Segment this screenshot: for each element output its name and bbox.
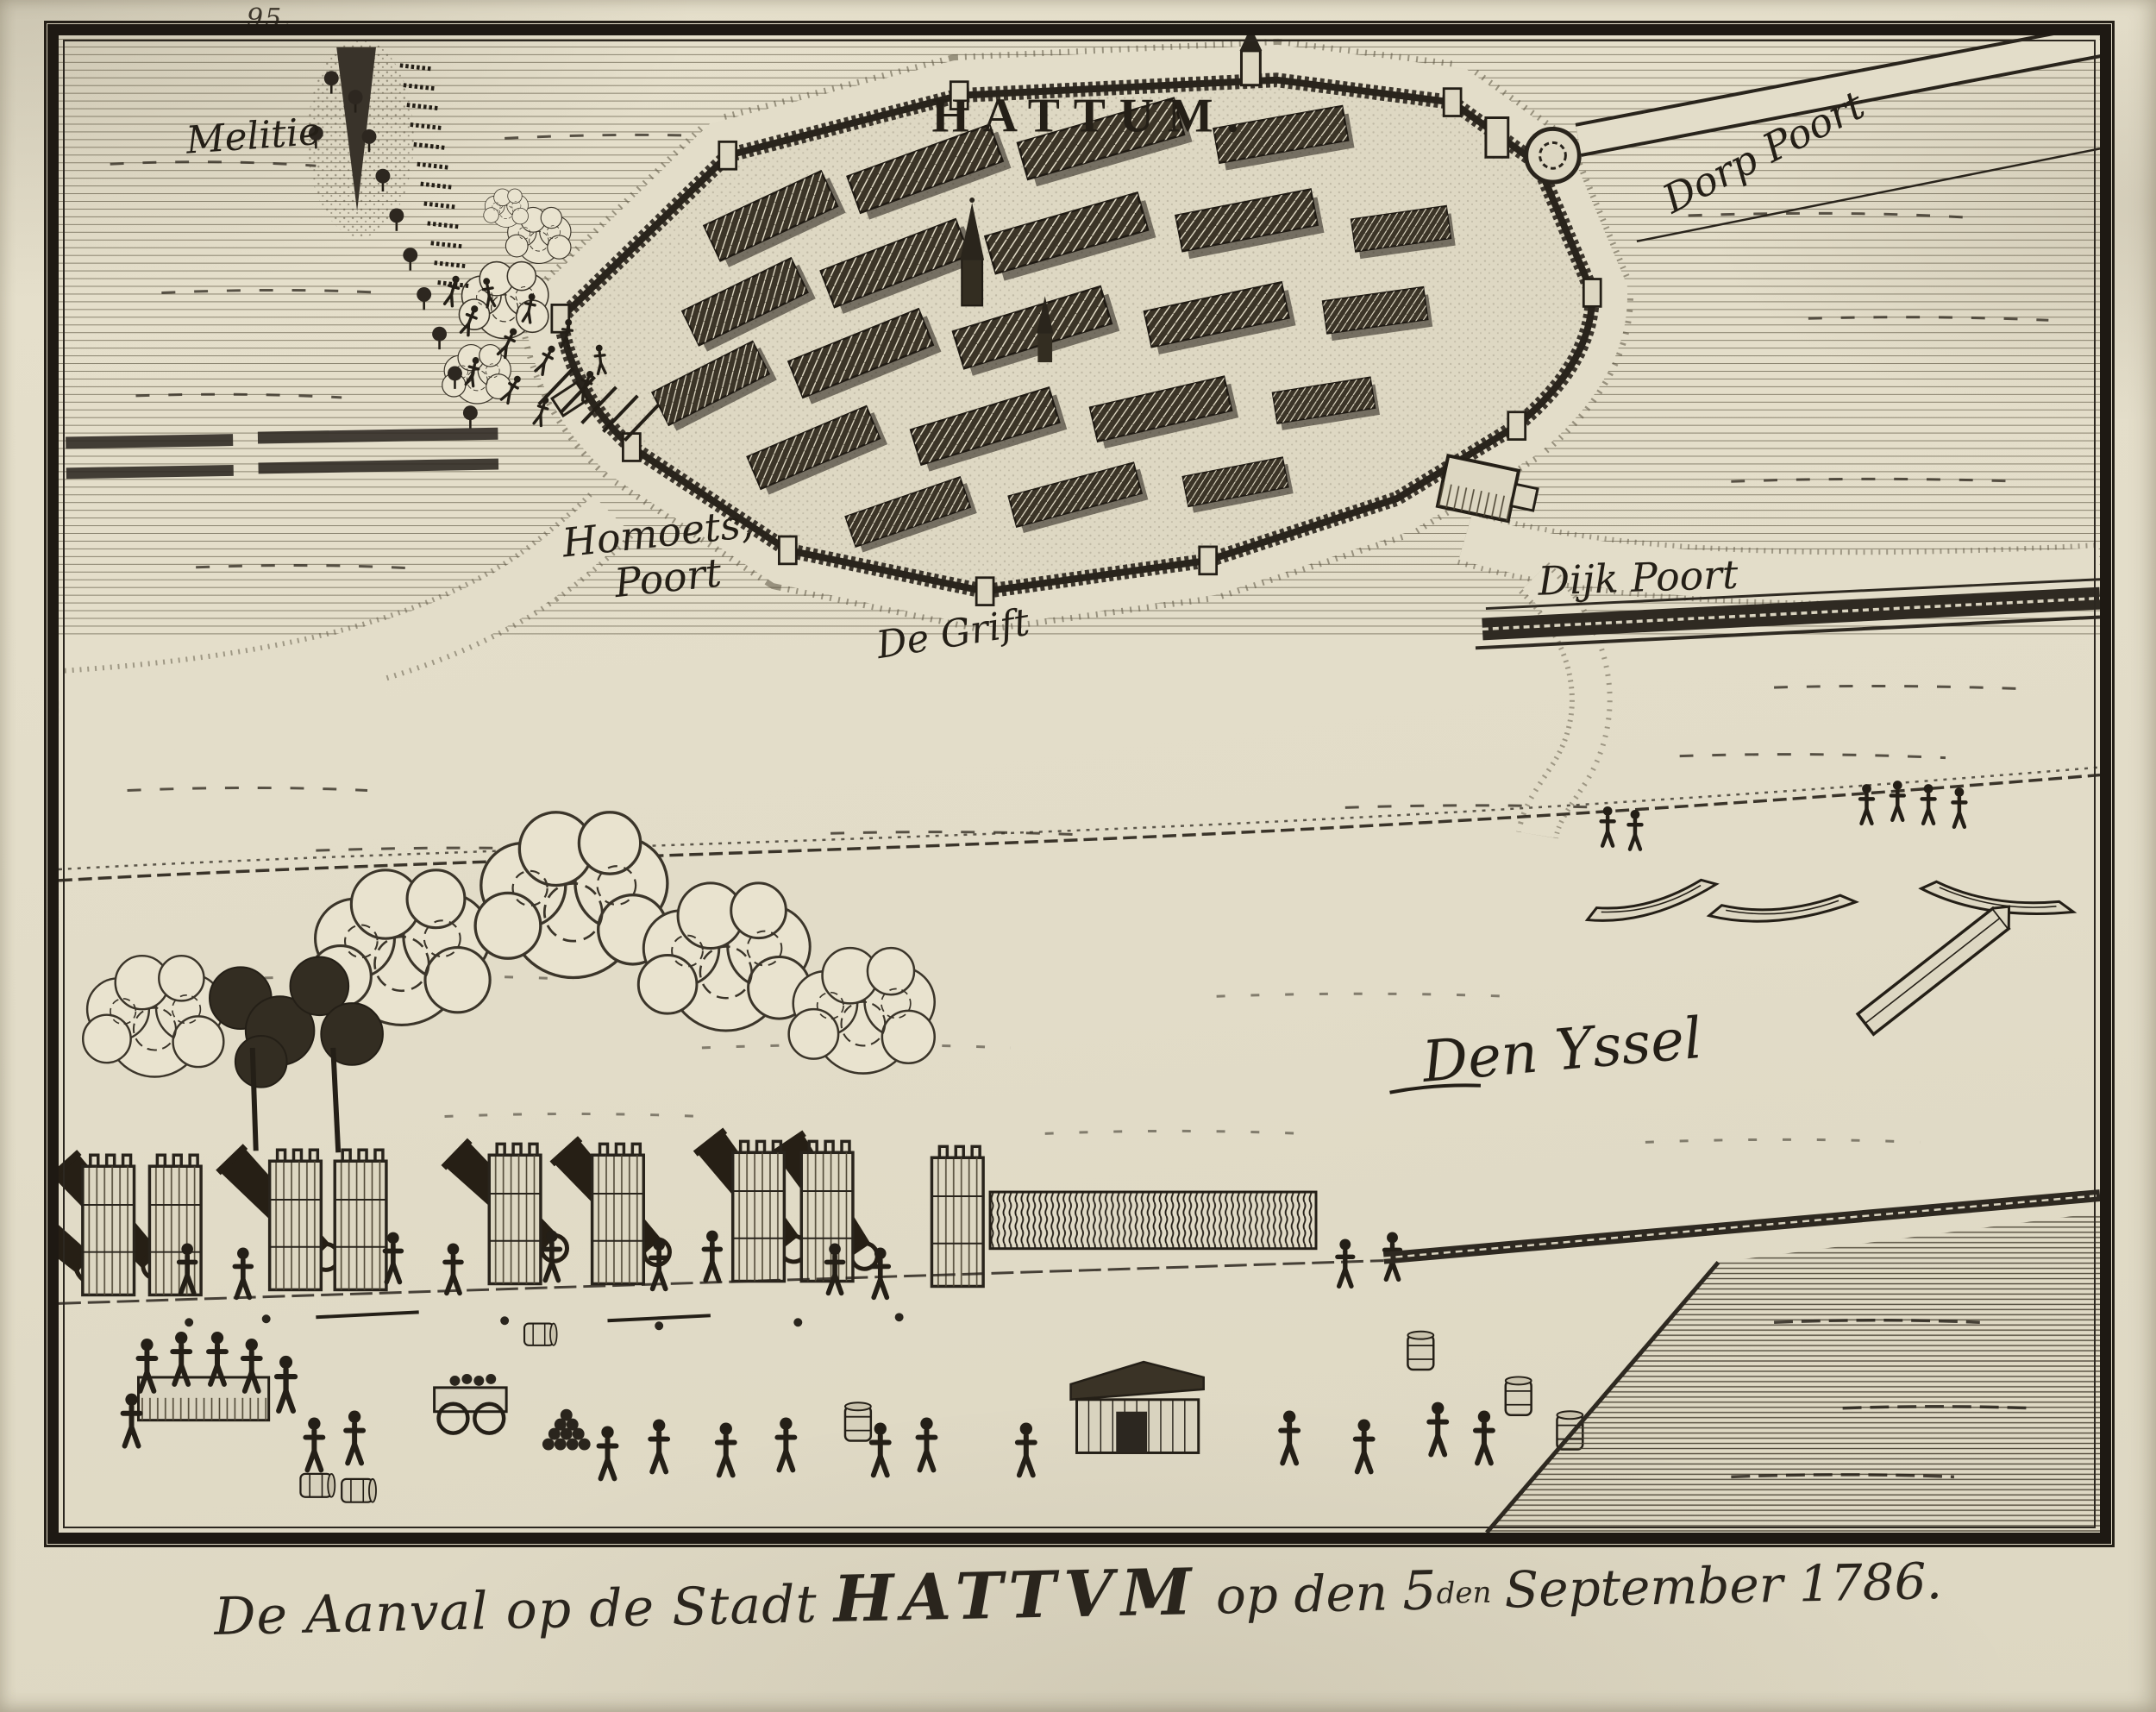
ball-cart	[435, 1374, 507, 1433]
punt-boat	[1858, 900, 2020, 1034]
caption: De Aanval op de Stadt HATTVM op den 5den…	[120, 1538, 2035, 1652]
boats	[1584, 781, 2074, 1034]
caption-city-name: HATTVM	[821, 1555, 1213, 1637]
scene-svg: HATTUM. Melitie Dorp Poort Homoets, Poor…	[59, 35, 2100, 1533]
gabion-battery	[59, 1131, 1400, 1331]
gabion-towers	[83, 1141, 983, 1295]
label-hattum: HATTUM.	[932, 89, 1253, 142]
water-bottom-right	[1384, 1195, 2100, 1533]
brushwood-screen	[990, 1192, 1316, 1249]
battery-smoke	[83, 812, 935, 1077]
supply-shed	[1071, 1362, 1204, 1452]
foreground-soldiers	[123, 1394, 1493, 1479]
officers-table	[138, 1332, 295, 1420]
label-dijk-poort: Dijk Poort	[1537, 552, 1739, 605]
caption-middle: op den	[1215, 1563, 1388, 1625]
caption-date: September 1786.	[1495, 1552, 1943, 1620]
label-den-yssel: Den Yssel	[1419, 1006, 1704, 1095]
engraving-print: 95.	[0, 0, 2156, 1712]
caption-day: 5	[1391, 1558, 1437, 1622]
esplanade	[123, 1324, 1583, 1502]
page-number: 95.	[247, 3, 293, 34]
caption-prefix: De Aanval op de Stadt	[214, 1574, 818, 1647]
caption-day-ordinal: den	[1436, 1576, 1492, 1611]
cannonball-pile	[542, 1409, 591, 1451]
engraved-scene: HATTUM. Melitie Dorp Poort Homoets, Poor…	[59, 35, 2100, 1533]
